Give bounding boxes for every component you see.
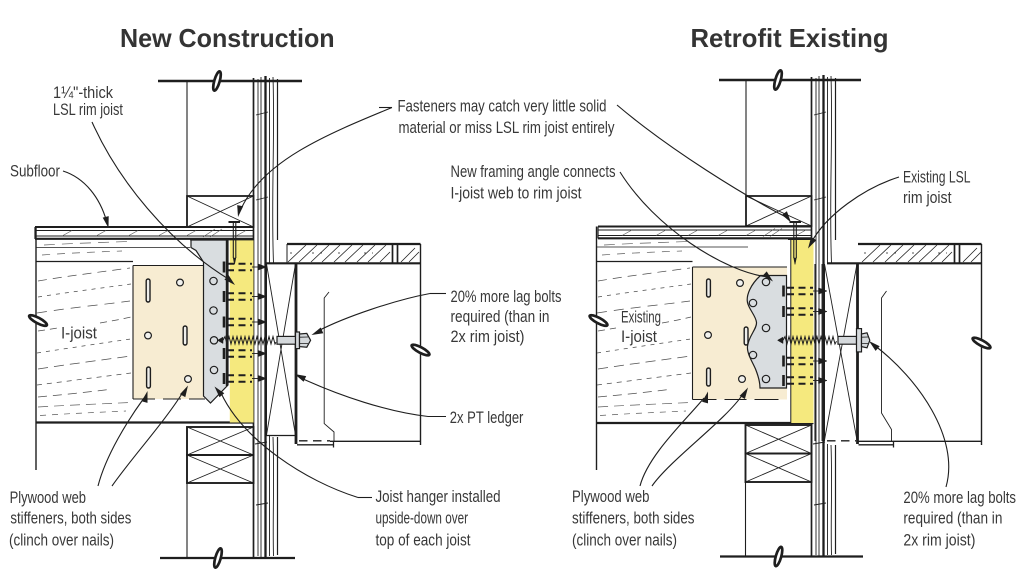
svg-text:I-joist: I-joist — [61, 324, 97, 343]
svg-text:20% more lag bolts: 20% more lag bolts — [903, 488, 1016, 507]
svg-text:Joist hanger installed: Joist hanger installed — [376, 487, 501, 506]
svg-text:(clinch over nails): (clinch over nails) — [572, 531, 677, 550]
svg-text:New framing angle connects: New framing angle connects — [451, 162, 616, 181]
svg-text:2x PT ledger: 2x PT ledger — [450, 408, 524, 427]
svg-text:I-joist web to rim joist: I-joist web to rim joist — [451, 184, 582, 203]
svg-text:20% more lag bolts: 20% more lag bolts — [451, 287, 562, 306]
svg-text:LSL rim joist: LSL rim joist — [53, 100, 123, 119]
svg-text:material or miss LSL rim joist: material or miss LSL rim joist entirely — [399, 118, 615, 137]
svg-text:2x rim joist): 2x rim joist) — [903, 531, 975, 550]
svg-text:Existing: Existing — [621, 308, 661, 327]
svg-text:New Construction: New Construction — [120, 23, 335, 53]
svg-text:2x rim joist): 2x rim joist) — [451, 327, 525, 346]
svg-text:Fasteners may catch very littl: Fasteners may catch very little solid — [398, 97, 607, 116]
svg-text:Existing LSL: Existing LSL — [903, 168, 971, 187]
svg-text:stiffeners, both sides: stiffeners, both sides — [572, 509, 695, 528]
svg-text:(clinch over nails): (clinch over nails) — [9, 531, 114, 550]
svg-text:Retrofit Existing: Retrofit Existing — [691, 23, 889, 53]
svg-text:required (than in: required (than in — [903, 509, 1002, 528]
svg-text:required (than in: required (than in — [451, 307, 550, 326]
svg-text:top of each joist: top of each joist — [376, 531, 471, 550]
svg-text:stiffeners, both sides: stiffeners, both sides — [10, 509, 131, 528]
svg-text:Plywood web: Plywood web — [10, 488, 86, 507]
svg-text:upside-down over: upside-down over — [376, 509, 469, 528]
svg-text:rim joist: rim joist — [903, 188, 952, 207]
svg-text:Subfloor: Subfloor — [10, 162, 60, 181]
svg-text:Plywood web: Plywood web — [572, 487, 650, 506]
svg-text:I-joist: I-joist — [621, 327, 657, 346]
